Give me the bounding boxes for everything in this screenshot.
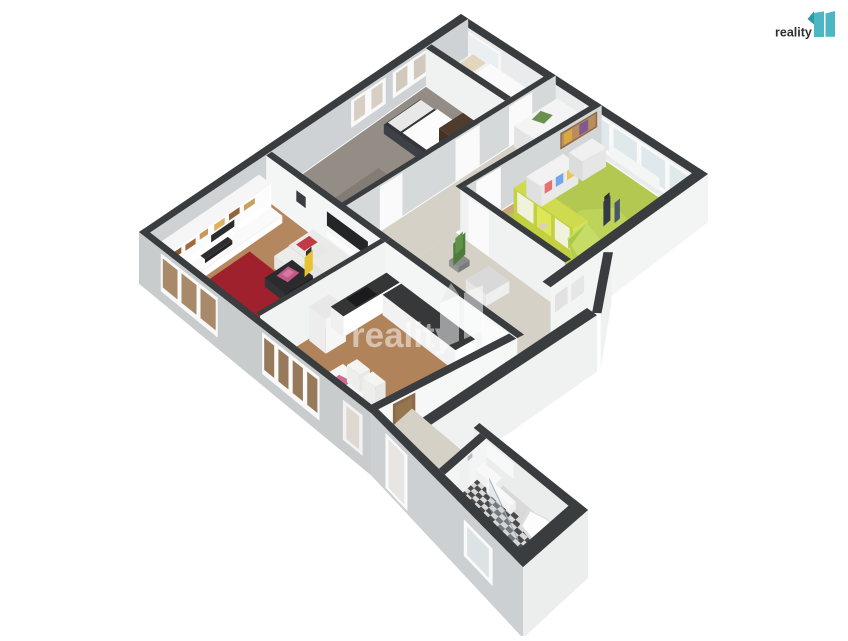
svg-text:reality: reality: [775, 26, 812, 40]
svg-text:reality: reality: [351, 316, 455, 355]
